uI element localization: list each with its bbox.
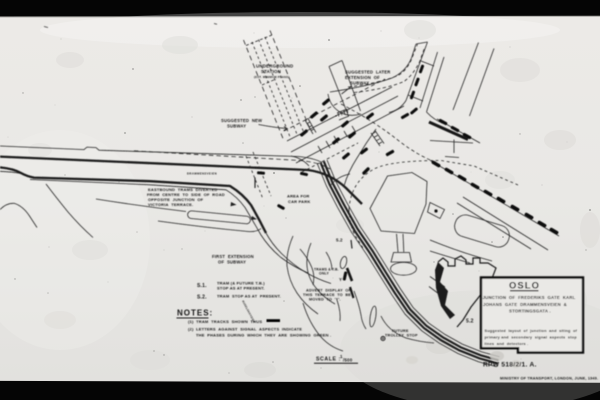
- svg-text:VICTORIA TERRACE.: VICTORIA TERRACE.: [148, 202, 193, 207]
- svg-text:SCALE :: SCALE :: [316, 357, 341, 363]
- svg-text:OSLO: OSLO: [509, 279, 540, 290]
- svg-text:MINISTRY OF TRANSPORT, LONDON,: MINISTRY OF TRANSPORT, LONDON, JUNE, 194…: [500, 377, 598, 381]
- svg-text:TROLLEY STOP: TROLLEY STOP: [385, 334, 418, 338]
- svg-text:(2) LETTERS AGAINST SIGNAL: (2) LETTERS AGAINST SIGNAL ASPECTS INDIC…: [188, 327, 302, 332]
- svg-text:STOP AS AT PRESENT.: STOP AS AT PRESENT.: [217, 286, 265, 291]
- svg-text:ONLY: ONLY: [319, 272, 329, 276]
- svg-text:ADVERT DISPLAY ON: ADVERT DISPLAY ON: [306, 289, 351, 293]
- svg-text:5.2: 5.2: [336, 238, 343, 243]
- svg-text:CAR PARK: CAR PARK: [288, 199, 310, 204]
- svg-text:SUGGESTED NEW: SUGGESTED NEW: [221, 118, 262, 123]
- svg-text:5.2: 5.2: [466, 319, 474, 325]
- svg-text:THE PHASES DURING WHICH TH: THE PHASES DURING WHICH THEY ARE SHOWING…: [196, 333, 331, 338]
- svg-text:OF SUBWAY: OF SUBWAY: [218, 260, 246, 265]
- svg-text:TRAM STOP AS AT PRESENT.: TRAM STOP AS AT PRESENT.: [217, 294, 281, 299]
- svg-text:S.1.: S.1.: [197, 283, 207, 289]
- svg-text:SUGGESTED LATER: SUGGESTED LATER: [345, 70, 390, 75]
- svg-text:STATION: STATION: [261, 69, 281, 74]
- svg-text:FIRST EXTENSION: FIRST EXTENSION: [212, 254, 254, 259]
- svg-text:THIS TERRACE TO BE: THIS TERRACE TO BE: [303, 293, 351, 297]
- svg-text:S.2.: S.2.: [197, 295, 207, 301]
- svg-text:EXTENSION OF: EXTENSION OF: [345, 75, 380, 80]
- svg-text:Y: Y: [339, 277, 342, 282]
- svg-text:SUBWAY: SUBWAY: [350, 81, 369, 86]
- svg-text:JOHANS GATE DRAMMENSVEIEN &: JOHANS GATE DRAMMENSVEIEN &: [483, 302, 567, 307]
- svg-text:primary and secondary signal: primary and secondary signal aspects sto…: [485, 336, 578, 340]
- svg-text:DRAMMENSVEIEN: DRAMMENSVEIEN: [187, 172, 217, 176]
- svg-text:AREA FOR: AREA FOR: [287, 194, 310, 199]
- svg-text:JUNCTION OF FREDERIKS GATE: JUNCTION OF FREDERIKS GATE KARL: [483, 295, 576, 300]
- svg-text:RPW 518/2/1. A.: RPW 518/2/1. A.: [483, 362, 537, 369]
- svg-text:STORTINGSGATA .: STORTINGSGATA .: [509, 309, 551, 314]
- svg-text:UNDERGROUND: UNDERGROUND: [256, 64, 293, 69]
- svg-text:lines and detectors .: lines and detectors .: [485, 342, 529, 346]
- svg-text:FUTURE: FUTURE: [392, 329, 409, 333]
- svg-text:NOTES:: NOTES:: [177, 309, 213, 318]
- svg-text:SUBWAY: SUBWAY: [227, 124, 246, 129]
- svg-text:Suggested layout of junctio: Suggested layout of junction and siting …: [485, 329, 578, 333]
- svg-text:(EST. MINIMUM PLANS): (EST. MINIMUM PLANS): [254, 75, 289, 79]
- svg-text:/500: /500: [343, 358, 353, 363]
- svg-text:MOVED TO 'Y'.: MOVED TO 'Y'.: [309, 298, 341, 302]
